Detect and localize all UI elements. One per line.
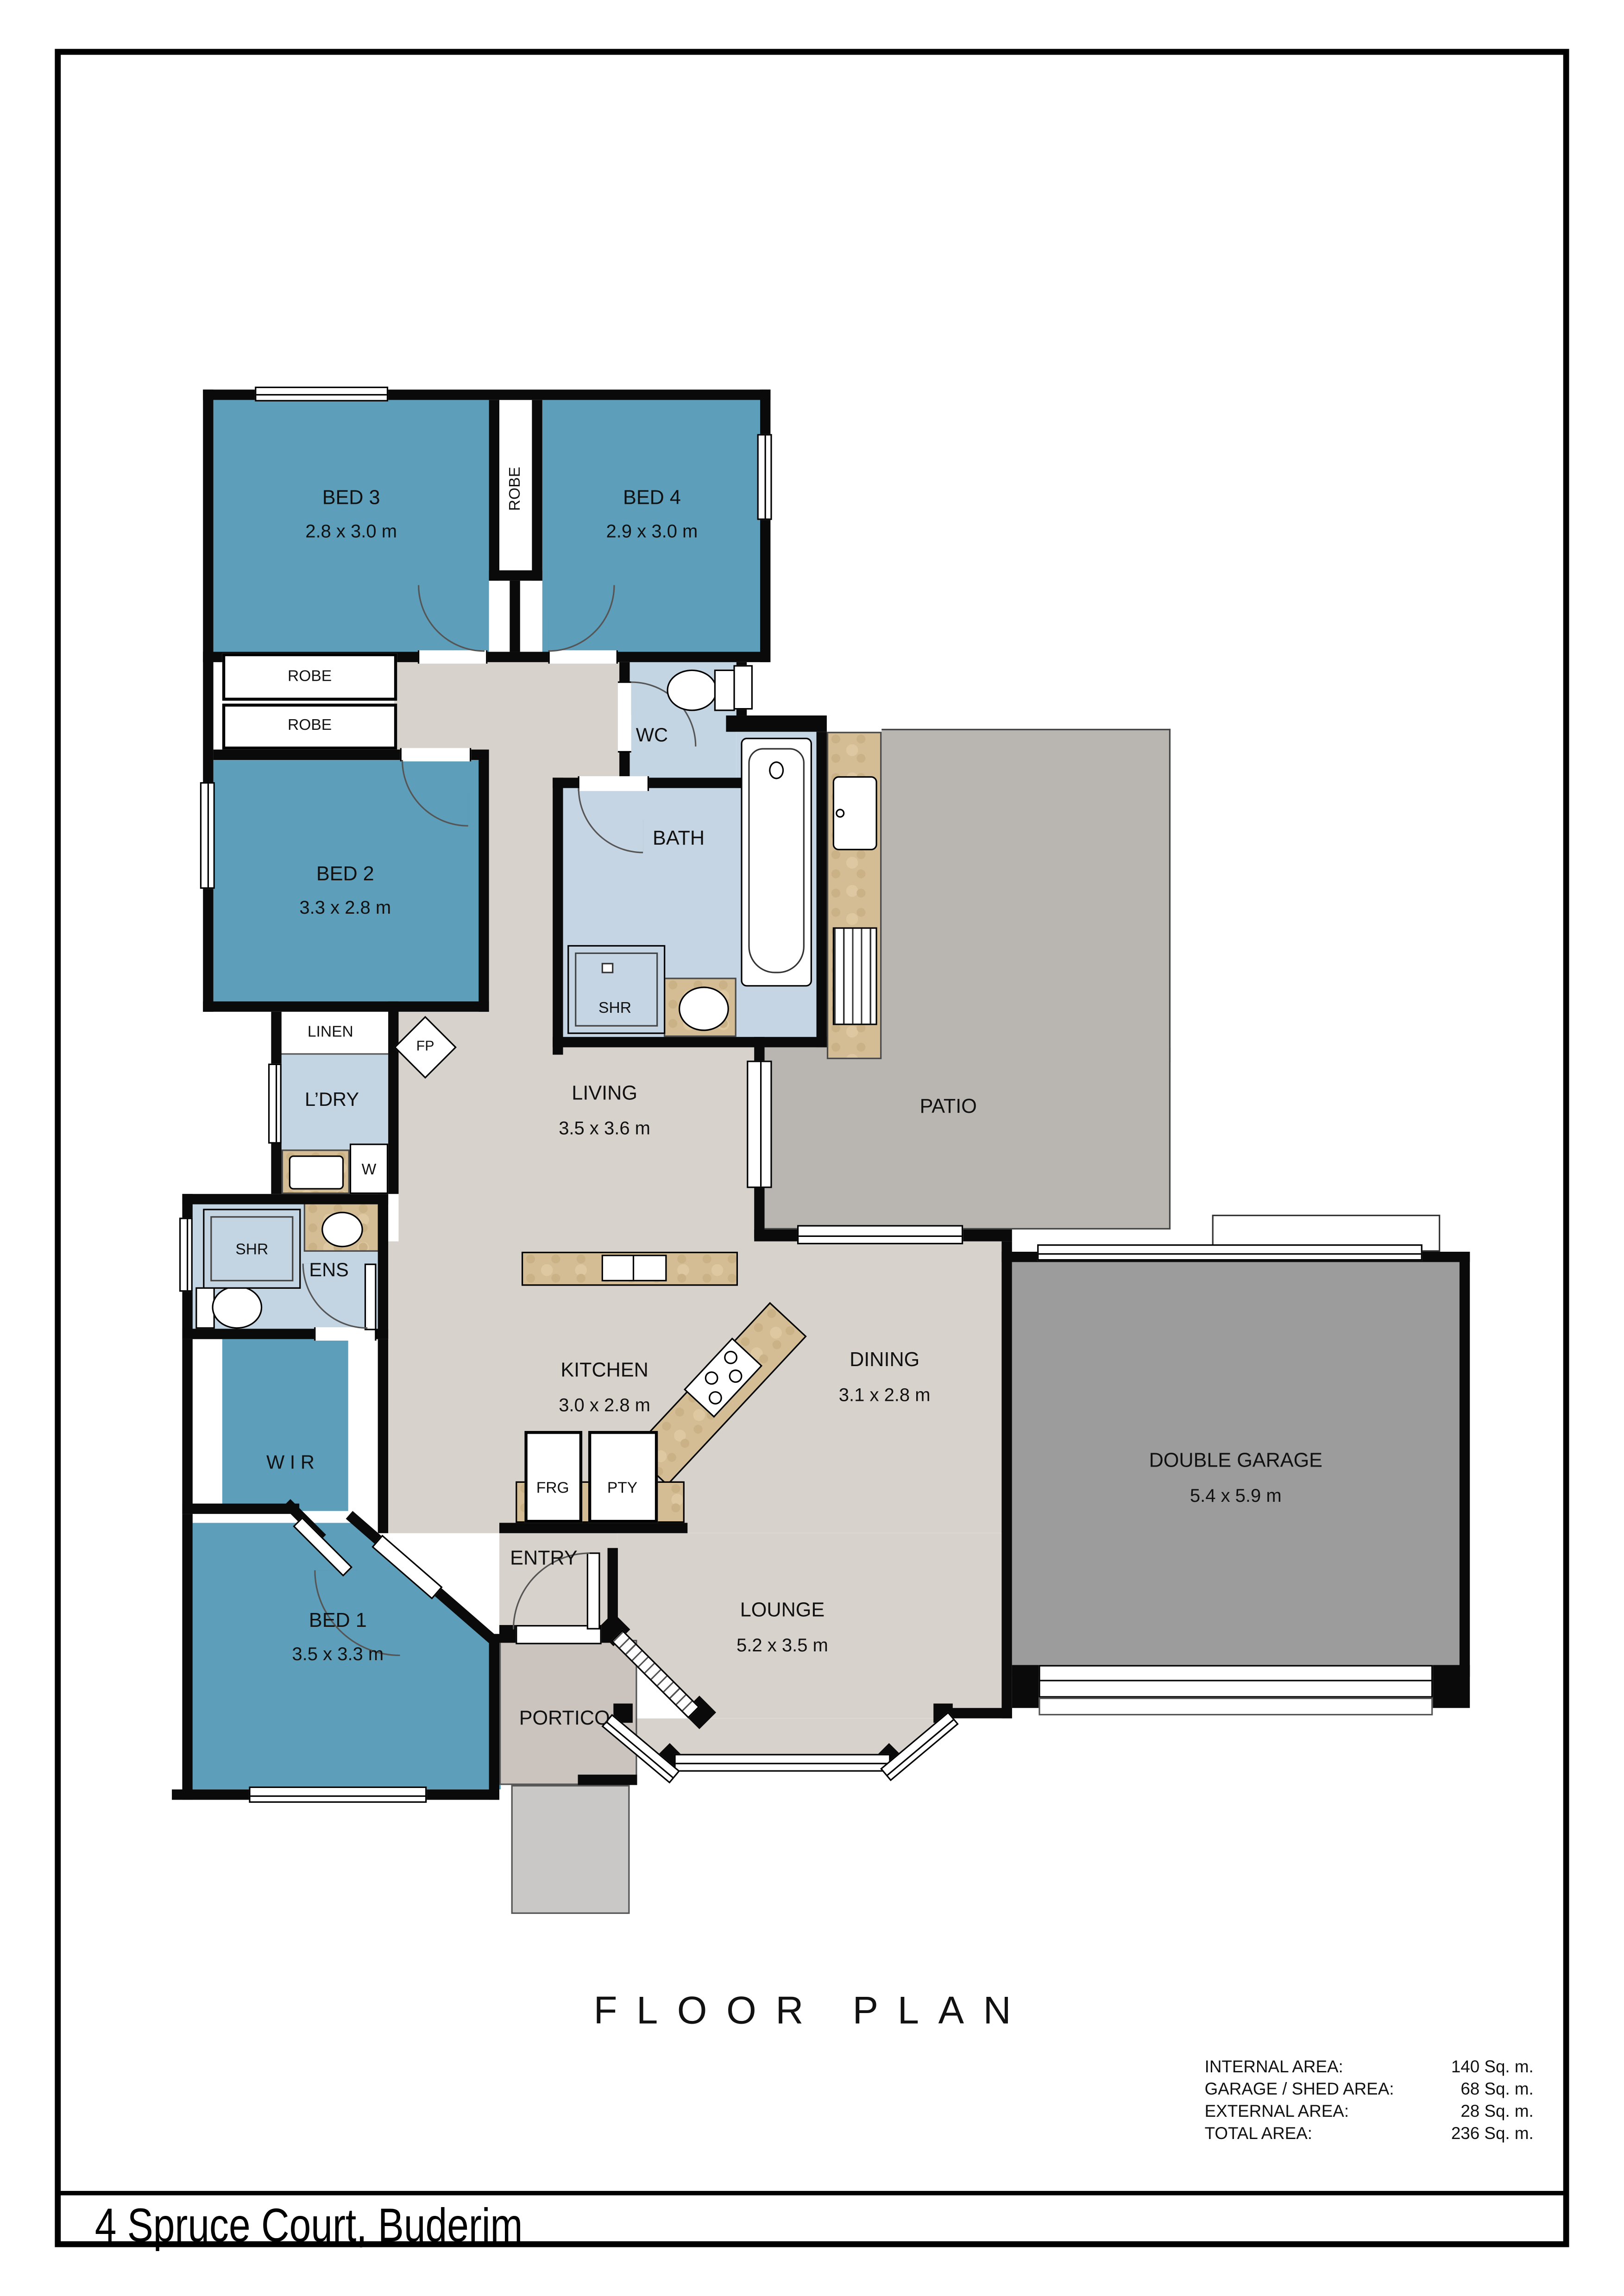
bed1-window bbox=[249, 1787, 427, 1803]
area-table: INTERNAL AREA: 140 Sq. m. GARAGE / SHED … bbox=[1205, 2059, 1546, 2148]
washer-label: W bbox=[362, 1162, 377, 1178]
wc-door-opening bbox=[618, 681, 631, 753]
wall bbox=[489, 1634, 499, 1800]
wall bbox=[203, 1001, 489, 1011]
pantry-box bbox=[588, 1431, 658, 1523]
wc-label: WC bbox=[636, 725, 668, 745]
entry-label: ENTRY bbox=[510, 1549, 578, 1568]
patio-vanity-sink-drain bbox=[836, 809, 844, 818]
patio-label: PATIO bbox=[920, 1097, 977, 1117]
kitchen-label: KITCHEN bbox=[560, 1360, 648, 1380]
garage-dims: 5.4 x 5.9 m bbox=[1190, 1487, 1282, 1506]
bed1-dims: 3.5 x 3.3 m bbox=[292, 1645, 384, 1664]
lounge-dims: 5.2 x 3.5 m bbox=[736, 1637, 828, 1655]
ldry-window bbox=[268, 1064, 282, 1144]
area-value: 28 Sq. m. bbox=[1460, 2103, 1533, 2121]
bed4-label: BED 4 bbox=[623, 488, 681, 508]
cooktop-burner bbox=[726, 1367, 745, 1386]
wall bbox=[489, 571, 542, 581]
area-label: EXTERNAL AREA: bbox=[1205, 2103, 1349, 2121]
ldry-label: L’DRY bbox=[305, 1090, 359, 1109]
bed2-dims: 3.3 x 2.8 m bbox=[299, 899, 391, 917]
patio-floor-upper bbox=[881, 729, 1171, 1062]
living-label: LIVING bbox=[572, 1083, 637, 1103]
wall bbox=[489, 400, 499, 581]
bed4-door-opening bbox=[548, 650, 618, 664]
bath-shower-head bbox=[602, 963, 614, 973]
ens-basin bbox=[321, 1212, 363, 1248]
wall bbox=[499, 1523, 687, 1533]
bed2-door-opening bbox=[400, 748, 472, 761]
bathtub-drain bbox=[769, 761, 784, 779]
bath-label: BATH bbox=[653, 828, 705, 848]
bed2-window bbox=[200, 782, 215, 889]
wall bbox=[1460, 1252, 1470, 1677]
bed2-label: BED 2 bbox=[316, 864, 374, 884]
robe-box-1-label: ROBE bbox=[288, 669, 332, 685]
portico-label: PORTICO bbox=[519, 1708, 610, 1728]
bed4-dims: 2.9 x 3.0 m bbox=[606, 522, 698, 541]
area-row: GARAGE / SHED AREA: 68 Sq. m. bbox=[1205, 2081, 1546, 2103]
wc-cistern bbox=[733, 665, 753, 709]
wall bbox=[378, 1194, 388, 1339]
wall bbox=[203, 389, 213, 1011]
bed3-label: BED 3 bbox=[322, 488, 380, 508]
pty-label: PTY bbox=[607, 1481, 637, 1497]
wall bbox=[817, 732, 827, 1047]
dining-patio-slider bbox=[797, 1225, 963, 1244]
bed3-window bbox=[255, 387, 388, 401]
ens-toilet-bowl bbox=[212, 1286, 262, 1329]
wall bbox=[388, 1001, 398, 1194]
wall bbox=[553, 778, 563, 1054]
bath-shr-label: SHR bbox=[598, 1001, 631, 1017]
dining-dims: 3.1 x 2.8 m bbox=[839, 1386, 931, 1405]
area-row: TOTAL AREA: 236 Sq. m. bbox=[1205, 2126, 1546, 2148]
bed3-door-opening bbox=[418, 650, 487, 664]
living-dims: 3.5 x 3.6 m bbox=[559, 1119, 650, 1138]
wc-toilet-bowl bbox=[667, 670, 717, 711]
ens-shr-label: SHR bbox=[235, 1242, 268, 1258]
floor-plan-page: BED 3 2.8 x 3.0 m BED 4 2.9 x 3.0 m ROBE… bbox=[0, 0, 1624, 2296]
fridge-box bbox=[524, 1431, 582, 1523]
fp-label: FP bbox=[416, 1040, 434, 1054]
frg-label: FRG bbox=[536, 1481, 569, 1497]
island-sink-divider bbox=[633, 1256, 634, 1280]
bath-basin bbox=[679, 986, 729, 1031]
area-row: EXTERNAL AREA: 28 Sq. m. bbox=[1205, 2103, 1546, 2126]
ens-window bbox=[179, 1217, 193, 1292]
dining-label: DINING bbox=[850, 1350, 919, 1370]
bed1-label: BED 1 bbox=[309, 1611, 367, 1631]
ldry-tub bbox=[289, 1155, 344, 1190]
bay-window-centre bbox=[674, 1754, 890, 1771]
lounge-label: LOUNGE bbox=[740, 1600, 825, 1620]
wall bbox=[378, 1339, 388, 1533]
corridor-floor bbox=[489, 760, 553, 1055]
address-text: 4 Spruce Court, Buderim bbox=[95, 2198, 523, 2253]
wir-carpet-band bbox=[222, 1339, 348, 1511]
robe-box-2-label: ROBE bbox=[288, 718, 332, 734]
area-value: 140 Sq. m. bbox=[1451, 2059, 1534, 2076]
garage-window bbox=[1037, 1244, 1423, 1261]
wall bbox=[726, 715, 827, 732]
cooktop-burner bbox=[702, 1368, 721, 1387]
robe-vertical-label: ROBE bbox=[508, 467, 523, 511]
area-value: 68 Sq. m. bbox=[1460, 2081, 1533, 2099]
cooktop-burner bbox=[721, 1348, 740, 1367]
bed3-dims: 2.8 x 3.0 m bbox=[305, 522, 397, 541]
wall bbox=[478, 760, 489, 1012]
wc-toilet-tank bbox=[714, 670, 735, 711]
kitchen-dims: 3.0 x 2.8 m bbox=[559, 1397, 650, 1415]
wall bbox=[182, 1194, 388, 1204]
area-label: GARAGE / SHED AREA: bbox=[1205, 2081, 1394, 2099]
wall bbox=[532, 400, 542, 581]
area-value: 236 Sq. m. bbox=[1451, 2126, 1534, 2143]
area-label: INTERNAL AREA: bbox=[1205, 2059, 1343, 2076]
patio-floor-lower bbox=[765, 1048, 1171, 1230]
ens-label: ENS bbox=[309, 1260, 349, 1280]
wall bbox=[510, 581, 520, 652]
wall bbox=[1012, 1665, 1039, 1708]
cooktop-burner bbox=[706, 1388, 725, 1407]
wir-label: W I R bbox=[266, 1452, 315, 1472]
wall bbox=[553, 1037, 827, 1047]
garage-door-sill bbox=[1039, 1698, 1433, 1715]
garage-door-line bbox=[1040, 1680, 1431, 1681]
wall bbox=[760, 389, 770, 662]
address-divider bbox=[58, 2191, 1566, 2195]
floor-plan-title: FLOOR PLAN bbox=[367, 1988, 1256, 2034]
wall bbox=[1001, 1242, 1012, 1719]
garage-label: DOUBLE GARAGE bbox=[1149, 1450, 1322, 1470]
living-patio-slider bbox=[747, 1060, 772, 1188]
entry-path bbox=[511, 1785, 630, 1914]
bed4-window bbox=[757, 434, 772, 520]
wall bbox=[182, 1339, 192, 1514]
bathtub-inner bbox=[748, 748, 805, 973]
area-label: TOTAL AREA: bbox=[1205, 2126, 1312, 2143]
wall bbox=[182, 1514, 192, 1800]
linen-label: LINEN bbox=[308, 1025, 353, 1041]
wall bbox=[578, 1775, 637, 1785]
area-row: INTERNAL AREA: 140 Sq. m. bbox=[1205, 2059, 1546, 2081]
address-bar: 4 Spruce Court, Buderim bbox=[95, 2198, 617, 2247]
wall bbox=[182, 1504, 299, 1514]
wall bbox=[1433, 1665, 1470, 1708]
patio-bench-grate bbox=[833, 927, 877, 1025]
